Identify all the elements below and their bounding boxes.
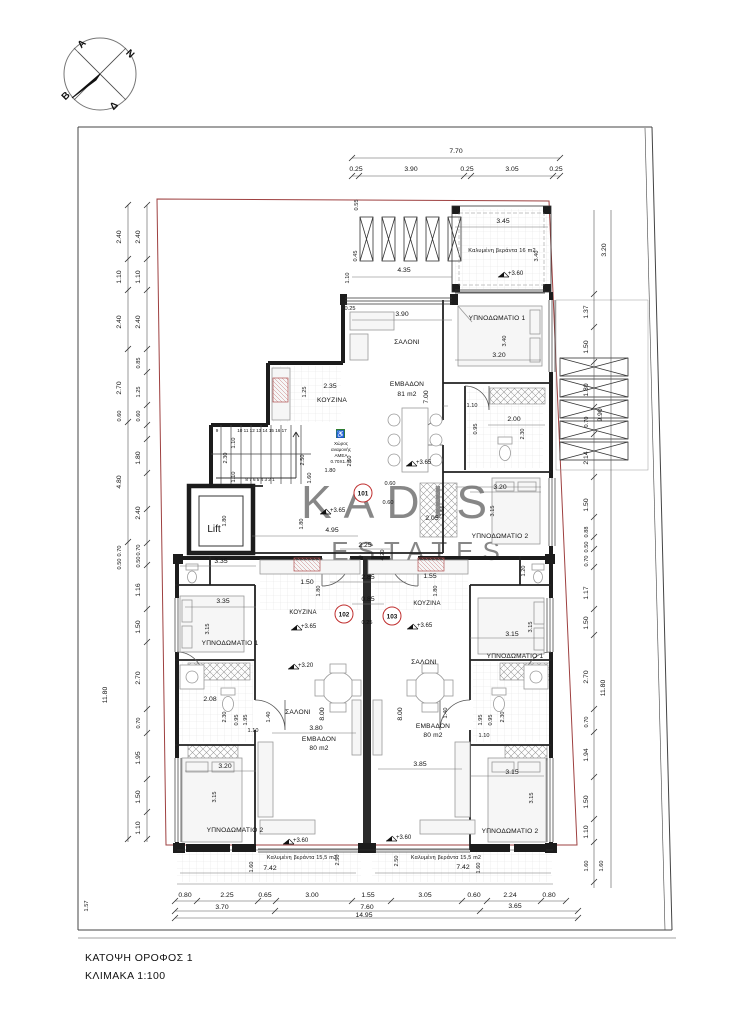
level-value: +3.65 — [301, 624, 317, 630]
dim: 2.40 — [116, 230, 123, 243]
dim: 1.80 — [325, 468, 336, 474]
dim: 0.70 — [136, 718, 142, 729]
level-value: +3.60 — [508, 271, 524, 277]
room-area80-103: 80 m2 — [423, 732, 442, 739]
dim: 1.60 — [249, 862, 255, 873]
stair-numbers-bottom: 8 7 6 5 4 3 2 1 — [245, 477, 275, 482]
amea-line4: 0.70X1.40 — [331, 459, 352, 464]
dim: 1.55 — [423, 573, 436, 580]
dim: 0.70 — [584, 417, 590, 428]
dim: 7.42 — [263, 865, 276, 872]
dim: 2.40 — [116, 315, 123, 328]
dim: 0.95 — [488, 715, 494, 726]
dim: 0.95 — [473, 424, 479, 435]
room-bed2-103: ΥΠΝΟΔΩΜΑΤΙΟ 2 — [482, 828, 539, 835]
dim: 7.00 — [423, 390, 430, 403]
unit-badge-101: 101 — [354, 484, 372, 502]
dim: 0.25 — [362, 620, 373, 626]
dim: 0.25 — [549, 166, 562, 173]
dim: 4.20 — [380, 550, 386, 561]
dim: 1.80 — [583, 383, 590, 396]
dim: 1.80 — [433, 586, 439, 597]
dim: 1.40 — [443, 708, 449, 719]
dim: 8.00 — [397, 707, 404, 720]
level-value: +3.65 — [416, 460, 432, 466]
dim: 0.65 — [258, 892, 271, 899]
wheelchair-icon: ♿ — [336, 430, 345, 439]
dim: 8.00 — [319, 707, 326, 720]
compass-d: Δ — [108, 100, 121, 113]
dim: 2.30 — [222, 712, 228, 723]
dim: 0.25 — [460, 166, 473, 173]
level-value: +3.65 — [417, 623, 433, 629]
dim: 3.20 — [492, 352, 505, 359]
dim: 3.15 — [205, 624, 211, 635]
amea-line2: αναμονής — [331, 446, 352, 452]
level-value: +3.20 — [298, 663, 314, 669]
dim: 7.60 — [360, 904, 373, 911]
dim: 3.15 — [212, 792, 218, 803]
dim: 2.24 — [503, 892, 516, 899]
floorplan-drawing: KADIS ESTATES A N B Δ — [0, 0, 731, 1024]
dim: 3.15 — [490, 506, 496, 517]
dim: 0.70 — [584, 717, 590, 728]
dim: 1.10 — [116, 270, 123, 283]
room-bed2-101: ΥΠΝΟΔΩΜΑΤΙΟ 2 — [472, 533, 529, 540]
unit-badge-103: 103 — [383, 607, 401, 625]
dim: 1.10 — [345, 273, 351, 284]
dim: 0.25 — [349, 166, 362, 173]
dim: 3.15 — [529, 793, 535, 804]
dim: 1.95 — [478, 715, 484, 726]
lift-car — [199, 496, 243, 546]
dim: 1.80 — [222, 516, 228, 527]
room-area80-102: 80 m2 — [309, 745, 328, 752]
dim: 3.15 — [505, 631, 518, 638]
room-bed1-101: ΥΠΝΟΔΩΜΑΤΙΟ 1 — [469, 315, 526, 322]
room-bed1-102: ΥΠΝΟΔΩΜΑΤΙΟ 1 — [202, 640, 259, 647]
compass-n: N — [123, 48, 136, 61]
dim: 3.65 — [508, 903, 521, 910]
dim: 1.95 — [243, 715, 249, 726]
floorplan-page: KADIS ESTATES A N B Δ — [0, 0, 731, 1024]
dim: 11.80 — [102, 687, 109, 704]
amea-line1: Χώρος — [334, 440, 349, 446]
room-area-103: ΕΜΒΑΔΟΝ — [416, 723, 450, 730]
dim: 1.10 — [467, 403, 478, 409]
dim: 1.57 — [84, 901, 90, 912]
dim: 1.95 — [135, 751, 142, 764]
dim: 2.70 — [583, 670, 590, 683]
dim: 2.00 — [507, 416, 520, 423]
dim: 1.80 — [135, 451, 142, 464]
dim: 2.35 — [323, 383, 336, 390]
compass-rose: A N B Δ — [60, 38, 136, 113]
dim: 0.80 — [542, 892, 555, 899]
dim: 0.55 — [354, 200, 360, 211]
dim: 3.20 — [601, 243, 608, 256]
room-veranda16: Καλυμένη βεράντα 16 m2 — [468, 247, 536, 254]
lift-label: Lift — [207, 524, 221, 535]
dim: 3.80 — [309, 725, 322, 732]
amea-line3: ΑΜΕΑ — [334, 453, 348, 458]
dim: 1.50 — [300, 579, 313, 586]
stair-number-nine: 9 — [216, 428, 219, 433]
dim: 2.30 — [223, 453, 229, 464]
dim: 2.25 — [220, 892, 233, 899]
unit-badge-102: 102 — [335, 605, 353, 623]
room-veranda155-right: Καλυμένη βεράντα 15,5 m2 — [411, 854, 481, 861]
dim: 1.94 — [583, 748, 590, 761]
dim: 1.25 — [302, 387, 308, 398]
dim: 1.10 — [231, 472, 237, 483]
room-veranda155-left: Καλυμένη βεράντα 15,5 m2 — [267, 854, 337, 861]
dim: 11.80 — [600, 680, 607, 697]
drawing-scale: ΚΛΙΜΑΚΑ 1:100 — [85, 970, 166, 982]
right-pergola — [556, 300, 648, 470]
dim: 3.15 — [505, 769, 518, 776]
dim: 1.10 — [135, 821, 142, 834]
dim: 0.60 — [117, 411, 123, 422]
dim: 2.40 — [135, 230, 142, 243]
dim: 1.40 — [266, 712, 272, 723]
dim: 3.20 — [493, 484, 506, 491]
dim: 4.95 — [325, 527, 338, 534]
dim: 1.60 — [476, 863, 482, 874]
dim: 1.25 — [136, 387, 142, 398]
dim: 1.55 — [361, 892, 374, 899]
dim: 9.90 — [597, 408, 604, 421]
dim: 1.80 — [299, 519, 305, 530]
dim: 2.08 — [203, 696, 216, 703]
dim: 7.42 — [456, 864, 469, 871]
dim: 1.20 — [521, 566, 527, 577]
dim: 2.85 — [361, 574, 374, 581]
dim: 1.60 — [599, 861, 605, 872]
dim: 2.14 — [583, 451, 590, 464]
sofa — [420, 742, 475, 834]
dim: 0.85 — [361, 596, 374, 603]
dim: 3.85 — [413, 761, 426, 768]
title-block: ΚΑΤΟΨΗ ΟΡΟΦΟΣ 1 ΚΛΙΜΑΚΑ 1:100 — [85, 952, 193, 982]
dim: 3.20 — [218, 763, 231, 770]
dim: 0.50 — [584, 542, 590, 553]
dim: 0.85 — [136, 358, 142, 369]
dim: 1.50 — [583, 616, 590, 629]
level-value: +3.60 — [396, 835, 412, 841]
bed — [478, 598, 544, 654]
dim: 3.05 — [505, 166, 518, 173]
level-value: +3.60 — [293, 838, 309, 844]
top-louvers — [360, 217, 461, 261]
dim: 2.30 — [520, 429, 526, 440]
room-kitchen-103: ΚΟΥΖΙΝΑ — [413, 601, 440, 607]
dim: 1.10 — [135, 270, 142, 283]
compass-a: A — [76, 38, 89, 51]
sofa — [350, 312, 394, 360]
unit-number-103: 103 — [387, 614, 398, 621]
stair-numbers-top: 10 11 12 13 14 15 16 17 — [237, 428, 287, 433]
room-living-102: ΣΑΛΟΝΙ — [285, 709, 311, 716]
dim: 3.90 — [395, 311, 408, 318]
room-kitchen-102: ΚΟΥΖΙΝΑ — [289, 610, 316, 616]
dim: 1.50 — [135, 790, 142, 803]
watermark-line1: KADIS — [301, 476, 499, 528]
dim: 2.30 — [500, 712, 506, 723]
dim: 2.25 — [358, 542, 371, 549]
dim: 2.70 — [116, 381, 123, 394]
dim: 0.60 — [467, 892, 480, 899]
room-living-101: ΣΑΛΟΝΙ — [394, 339, 420, 346]
dim: 2.40 — [135, 315, 142, 328]
dim: 4.35 — [397, 267, 410, 274]
dim: 0.60 — [136, 411, 142, 422]
dim: 1.50 — [135, 620, 142, 633]
dim: 14.95 — [355, 912, 372, 919]
room-bed1-103: ΥΠΝΟΔΩΜΑΤΙΟ 1 — [487, 653, 544, 660]
dim: 3.00 — [305, 892, 318, 899]
dim: 2.50 — [394, 856, 400, 867]
dim: 1.17 — [583, 586, 590, 599]
dim: 0.50 — [136, 557, 142, 568]
dim: 1.10 — [248, 728, 259, 734]
dim: 0.50 — [117, 559, 123, 570]
room-area-102: ΕΜΒΑΔΟΝ — [302, 736, 336, 743]
dim: 4.80 — [116, 475, 123, 488]
dim: 1.80 — [316, 586, 322, 597]
room-area81: 81 m2 — [397, 391, 416, 398]
dim: 3.05 — [418, 892, 431, 899]
dim: 2.50 — [300, 455, 306, 466]
dim: 2.70 — [135, 671, 142, 684]
amea-note: ♿ Χώρος αναμονής ΑΜΕΑ 0.70X1.40 — [331, 429, 352, 464]
dim: 3.45 — [496, 218, 509, 225]
drawing-title: ΚΑΤΟΨΗ ΟΡΟΦΟΣ 1 — [85, 952, 193, 964]
dim: 0.95 — [234, 715, 240, 726]
dim: 3.40 — [502, 336, 508, 347]
dim: 1.10 — [479, 733, 490, 739]
dim: 3.70 — [215, 904, 228, 911]
room-living-103: ΣΑΛΟΝΙ — [411, 659, 437, 666]
round-table — [407, 664, 453, 712]
dim: 1.50 — [583, 498, 590, 511]
dim: 0.88 — [584, 527, 590, 538]
dim: 1.10 — [583, 825, 590, 838]
dim: 7.70 — [449, 148, 462, 155]
room-area-101: ΕΜΒΑΔΟΝ — [390, 381, 424, 388]
dim: 1.37 — [583, 305, 590, 318]
level-value: +3.65 — [330, 508, 346, 514]
room-kitchen-101: ΚΟΥΖΙΝΑ — [317, 397, 347, 404]
unit-number-102: 102 — [339, 612, 350, 619]
dim: 1.10 — [231, 438, 237, 449]
dim: 3.15 — [528, 622, 534, 633]
dim: 0.45 — [353, 251, 359, 262]
dim: 1.16 — [135, 583, 142, 596]
dim: 1.60 — [307, 473, 313, 484]
dining-table — [388, 408, 442, 472]
dim: 0.60 — [385, 481, 396, 487]
unit-number-101: 101 — [358, 491, 369, 498]
dim: 0.70 — [117, 546, 123, 557]
compass-b: B — [60, 90, 73, 103]
dim: 0.60 — [383, 500, 394, 506]
dim: 0.70 — [136, 545, 142, 556]
dim: 3.35 — [214, 558, 227, 565]
dim: 2.55 — [440, 506, 446, 517]
dim: 1.50 — [583, 340, 590, 353]
dim: 0.80 — [178, 892, 191, 899]
dim: 3.35 — [216, 598, 229, 605]
room-bed2-102: ΥΠΝΟΔΩΜΑΤΙΟ 2 — [207, 827, 264, 834]
dim: 2.40 — [135, 506, 142, 519]
dim: 0.25 — [345, 306, 356, 312]
dim: 2.05 — [425, 515, 438, 522]
sofa — [258, 742, 315, 834]
dim: 0.70 — [584, 556, 590, 567]
dim: 3.90 — [404, 166, 417, 173]
dim: 1.50 — [583, 795, 590, 808]
dim: 1.60 — [584, 861, 590, 872]
